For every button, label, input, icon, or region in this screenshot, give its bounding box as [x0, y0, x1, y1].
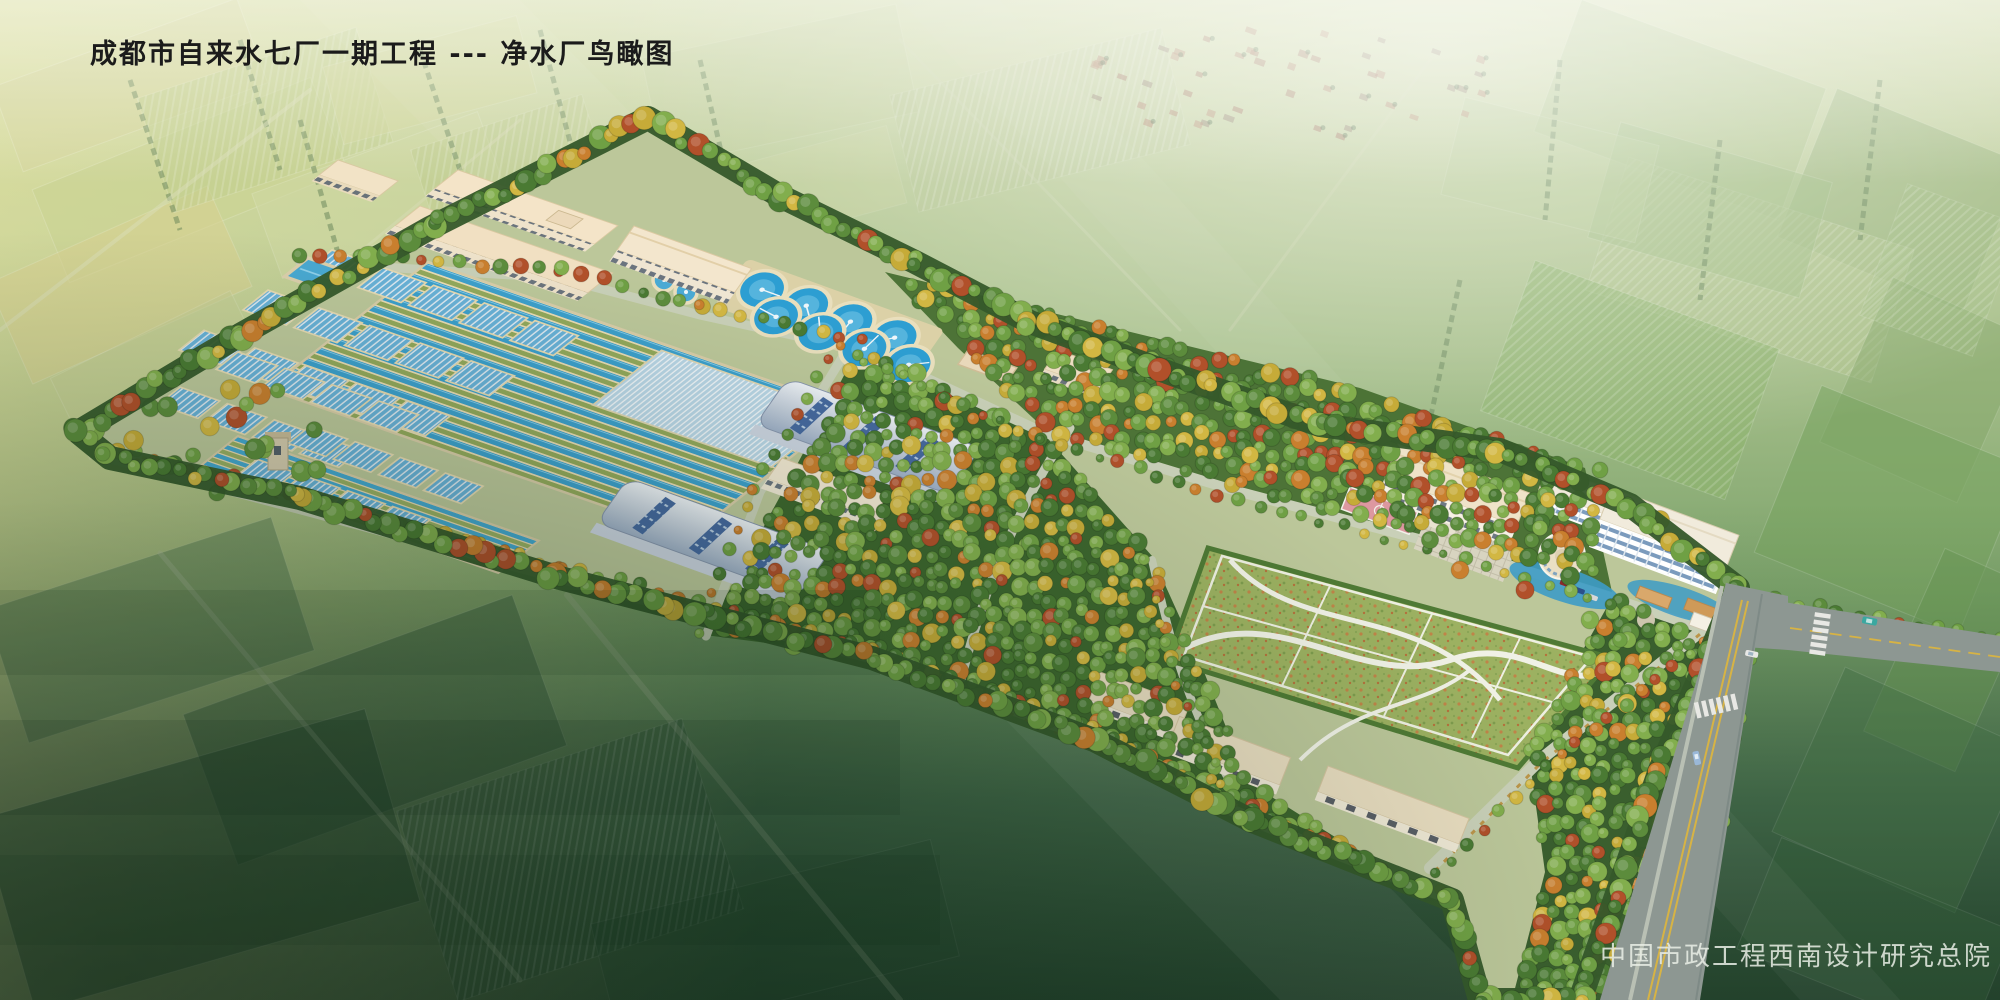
aerial-rendering: 成都市自来水七厂一期工程 --- 净水厂鸟瞰图 中国市政工程西南设计研究总院: [0, 0, 2000, 1000]
foreground-field-bands: [0, 590, 940, 945]
title: 成都市自来水七厂一期工程 --- 净水厂鸟瞰图: [90, 32, 674, 71]
watermark: 中国市政工程西南设计研究总院: [1600, 936, 1992, 973]
corner-shading: [0, 0, 2000, 1000]
